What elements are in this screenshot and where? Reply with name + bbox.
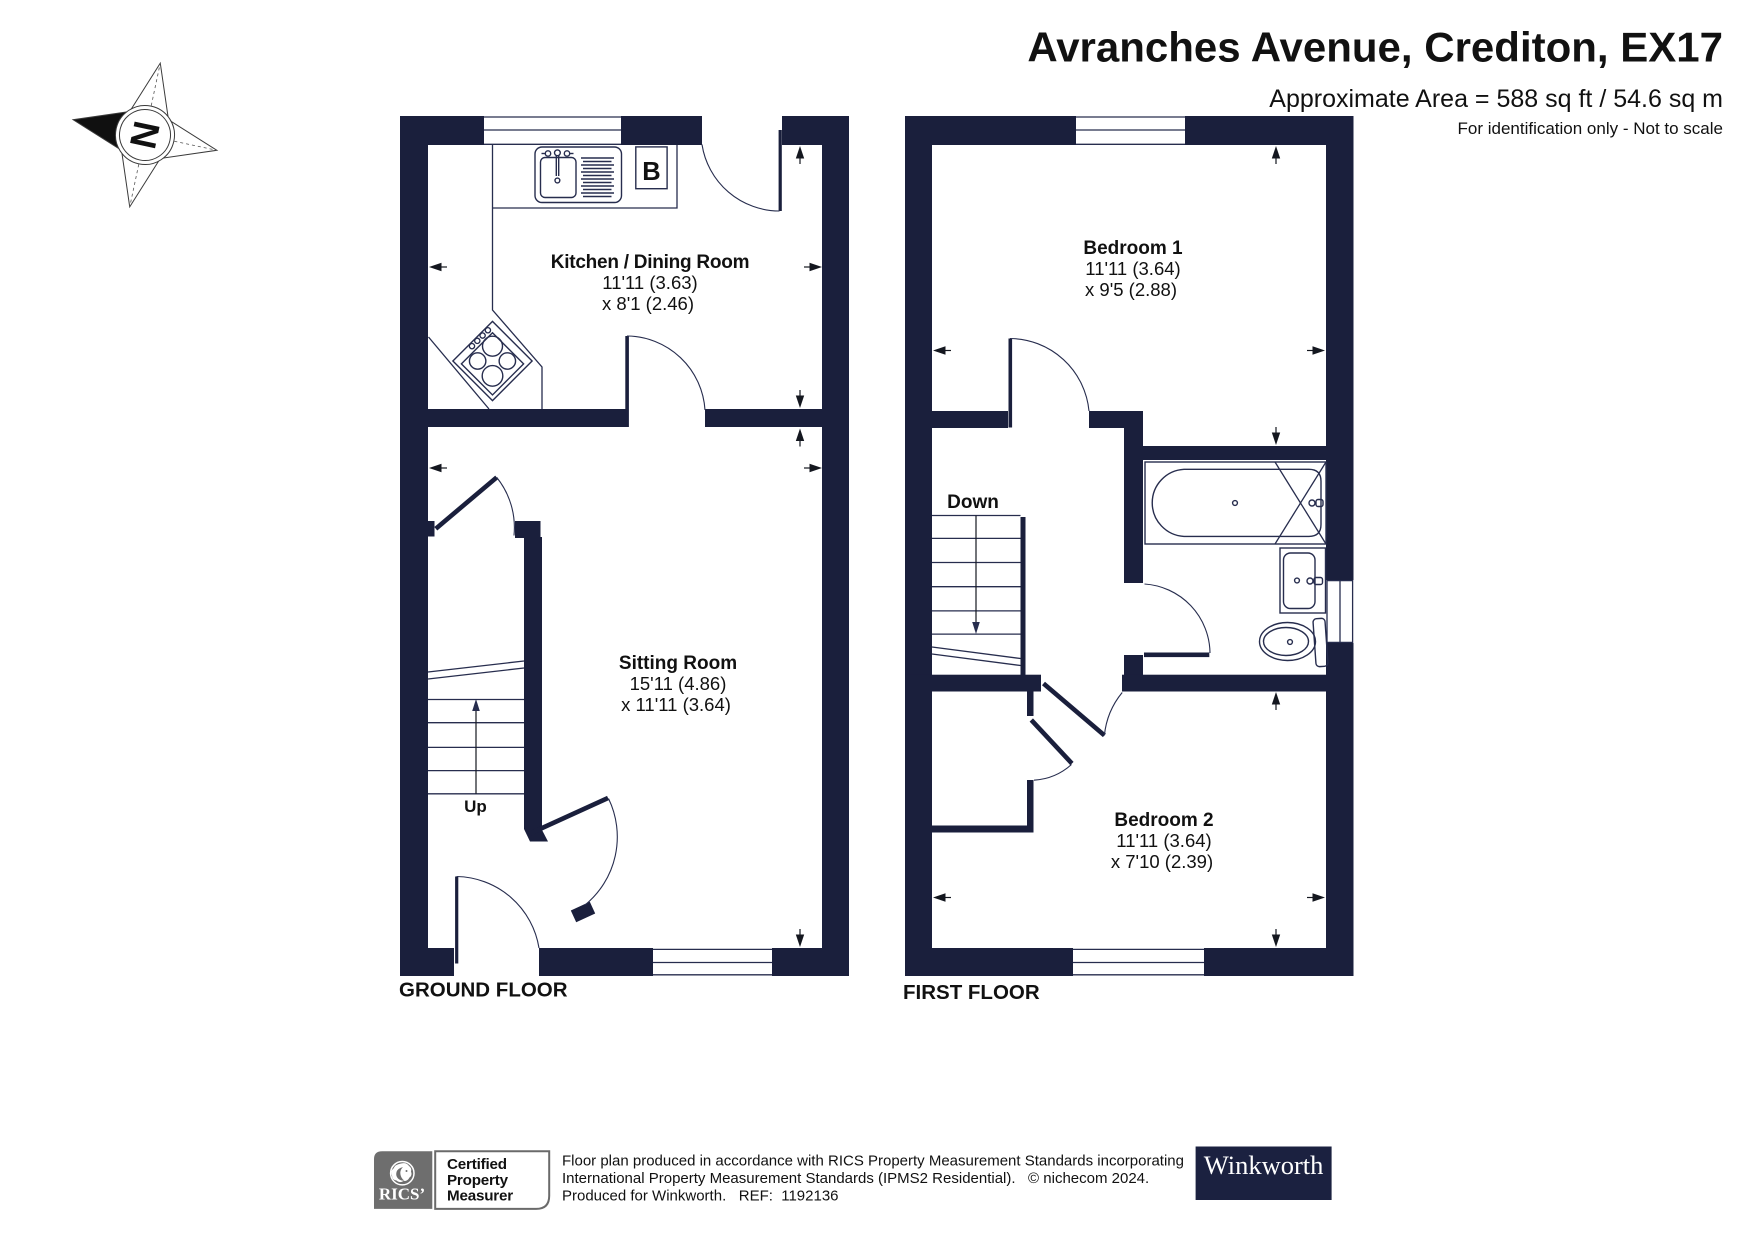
svg-text:Down: Down (947, 492, 999, 513)
svg-text:Bedroom 2: Bedroom 2 (1114, 810, 1213, 831)
svg-text:Bedroom 1: Bedroom 1 (1083, 238, 1183, 259)
svg-text:11'11 (3.64): 11'11 (3.64) (1116, 830, 1211, 851)
svg-text:FIRST FLOOR: FIRST FLOOR (903, 981, 1040, 1004)
svg-text:Winkworth: Winkworth (1204, 1150, 1324, 1180)
svg-text:15'11 (4.86): 15'11 (4.86) (630, 673, 727, 694)
svg-text:Floor plan produced in accorda: Floor plan produced in accordance with R… (562, 1153, 1184, 1170)
svg-text:Measurer: Measurer (447, 1188, 513, 1205)
svg-text:GROUND FLOOR: GROUND FLOOR (399, 979, 568, 1002)
svg-text:x 7'10 (2.39): x 7'10 (2.39) (1111, 851, 1213, 872)
svg-text:RICS’: RICS’ (379, 1185, 425, 1204)
svg-text:B: B (642, 158, 660, 186)
svg-text:x 8'1 (2.46): x 8'1 (2.46) (602, 293, 694, 314)
svg-text:x 11'11 (3.64): x 11'11 (3.64) (621, 694, 731, 715)
svg-text:Kitchen / Dining Room: Kitchen / Dining Room (551, 252, 749, 273)
svg-text:Property: Property (447, 1172, 509, 1189)
svg-text:Sitting Room: Sitting Room (619, 653, 737, 674)
svg-text:Up: Up (464, 797, 487, 816)
svg-text:11'11 (3.63): 11'11 (3.63) (602, 272, 697, 293)
svg-text:International Property Measure: International Property Measurement Stand… (562, 1170, 1149, 1187)
svg-text:Approximate Area = 588 sq ft /: Approximate Area = 588 sq ft / 54.6 sq m (1269, 85, 1723, 113)
svg-text:Avranches Avenue, Crediton, EX: Avranches Avenue, Crediton, EX17 (1027, 24, 1723, 71)
svg-text:For identification only - Not: For identification only - Not to scale (1457, 119, 1723, 138)
svg-text:Certified: Certified (447, 1156, 507, 1173)
svg-text:11'11 (3.64): 11'11 (3.64) (1085, 258, 1180, 279)
svg-text:x 9'5 (2.88): x 9'5 (2.88) (1085, 279, 1177, 300)
svg-text:Produced for Winkworth. REF:: Produced for Winkworth. REF: 1192136 (562, 1188, 839, 1205)
